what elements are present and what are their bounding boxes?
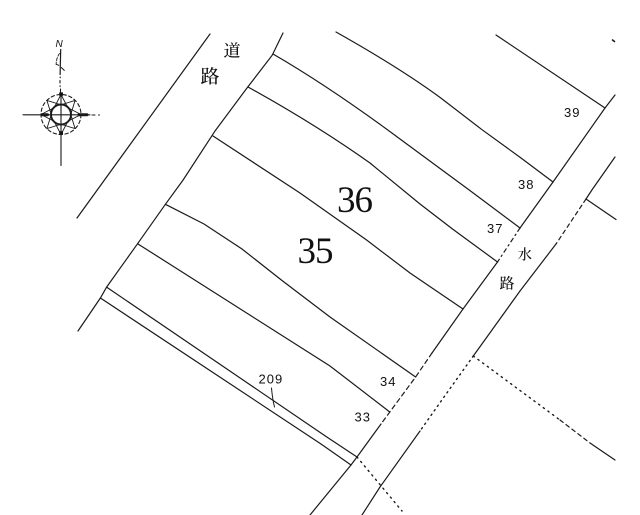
svg-text:33: 33	[355, 410, 371, 425]
svg-text:36: 36	[337, 180, 373, 221]
svg-text:34: 34	[380, 374, 396, 389]
svg-text:N: N	[56, 39, 64, 50]
svg-text:209: 209	[259, 372, 284, 387]
svg-text:38: 38	[518, 177, 534, 192]
svg-text:37: 37	[487, 221, 503, 236]
svg-text:39: 39	[564, 105, 580, 120]
svg-text:35: 35	[298, 231, 334, 272]
